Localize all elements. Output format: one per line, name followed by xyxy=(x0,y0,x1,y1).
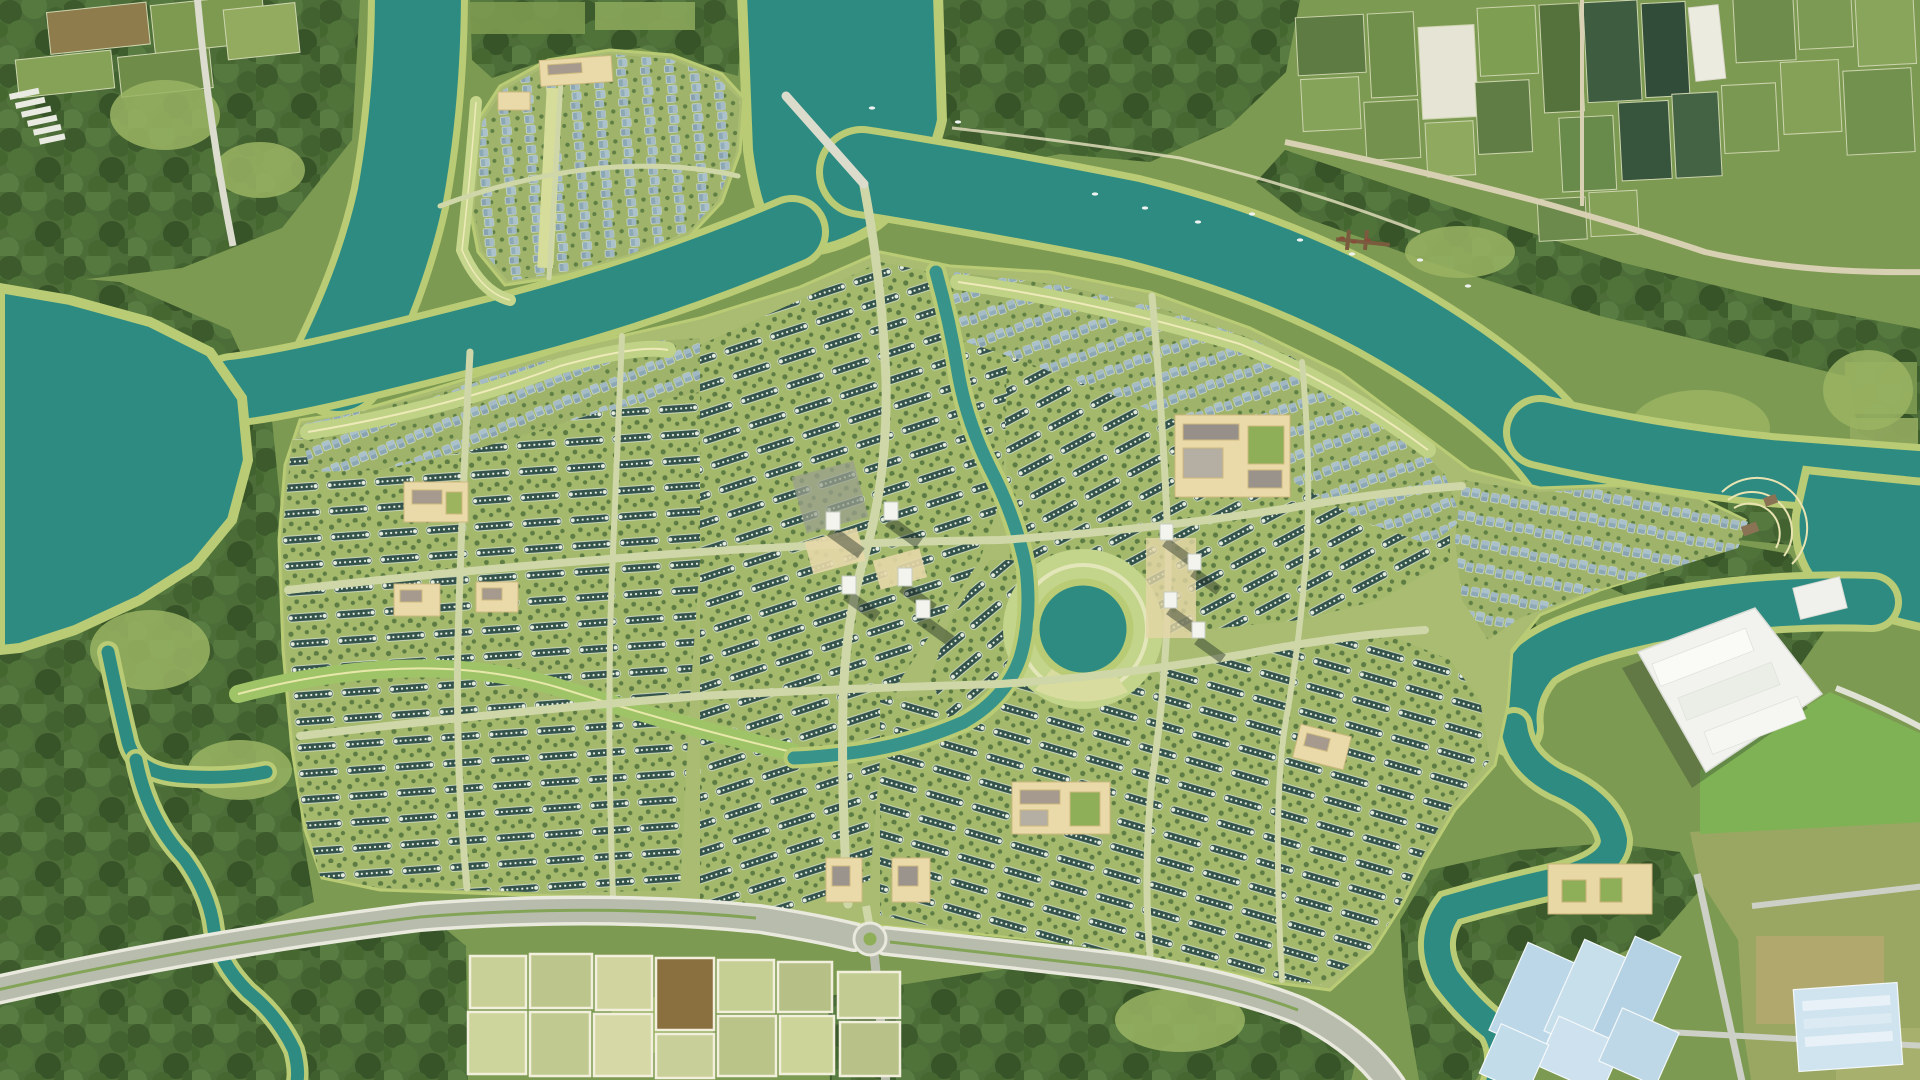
road-roundabout-north-stub xyxy=(866,906,869,923)
lake-central xyxy=(1036,582,1130,676)
masterplan-scene xyxy=(0,0,1920,1080)
field-top-b xyxy=(595,2,695,30)
roundabout-island xyxy=(864,933,877,946)
field-top-a xyxy=(470,2,585,34)
aerial-masterplan-render: Aerial masterplan rendering of a riversi… xyxy=(0,0,1920,1080)
industrial-shed-right xyxy=(1793,982,1902,1071)
riverside-u-complex xyxy=(1548,864,1652,914)
